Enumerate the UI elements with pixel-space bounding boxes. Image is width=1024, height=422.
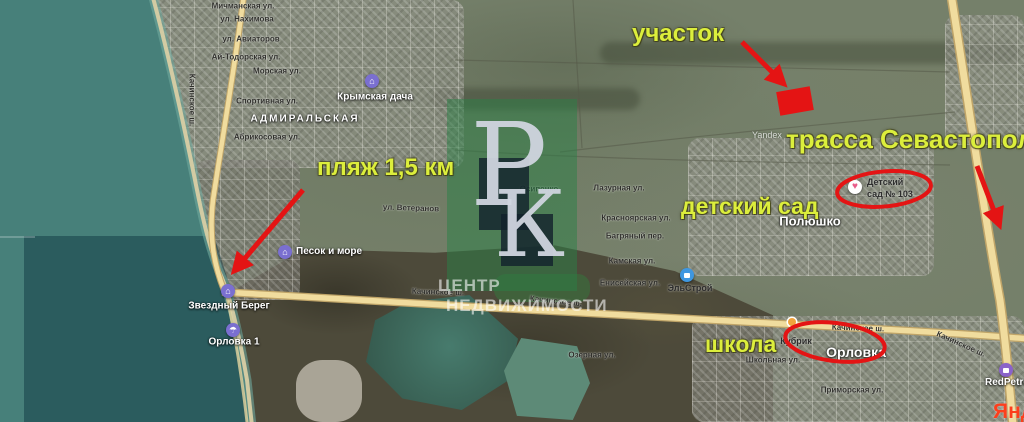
lodging-icon[interactable]: ⌂: [365, 74, 379, 88]
district-label-admiralskaya: АДМИРАЛЬСКАЯ: [250, 114, 359, 125]
street-label: Енисейская ул.: [600, 279, 660, 288]
store-icon[interactable]: [680, 268, 694, 282]
street-label: Качинское ш.: [529, 294, 582, 308]
street-label: Мичманская ул.: [212, 2, 275, 11]
lodging-icon[interactable]: ⌂: [278, 245, 292, 259]
street-label: Абрикосовая ул.: [234, 133, 300, 142]
street-label: Качинское ш.: [188, 74, 197, 126]
street-label: Качинское ш.: [935, 329, 987, 359]
street-label: Багряный пер.: [606, 232, 664, 241]
street-label: Спортивная ул.: [236, 97, 298, 106]
street-label: Красноярская ул.: [601, 214, 670, 223]
street-label: Осипенко: [520, 185, 559, 194]
kindergarten-icon[interactable]: ♥: [848, 180, 862, 194]
poi-label-redpetro: RedPetro: [985, 377, 1024, 388]
beach-icon[interactable]: ☂: [226, 323, 240, 337]
street-label: ул. Нахимова: [220, 15, 273, 24]
street-label: Качинское ш.: [832, 323, 885, 334]
street-label: Озерная ул.: [568, 351, 615, 360]
street-label: Камская ул.: [609, 257, 656, 266]
poi-label-pesok-i-more: Песок и море: [296, 246, 362, 257]
annotation-highway: трасса Севастополь: [786, 124, 1024, 155]
street-label: Приморская ул.: [821, 386, 884, 395]
poi-label-krymskaya-dacha: Крымская дача: [337, 92, 413, 103]
poi-label-zvezdny-bereg: Звездный Берег: [188, 301, 269, 312]
poi-label-kubrik: Кубрик: [780, 336, 812, 346]
street-label: Морская ул.: [253, 67, 301, 76]
fuel-station-icon[interactable]: [999, 363, 1013, 377]
poi-label-elstroy: ЭльСтрой: [668, 283, 713, 293]
annotation-school: школа: [705, 331, 776, 358]
poi-label-orlovka-1: Орловка 1: [208, 337, 259, 348]
annotation-beach: пляж 1,5 км: [317, 154, 454, 182]
poi-label-kindergarten-line2: сад № 103: [867, 189, 913, 199]
street-label: Качинское ш.: [412, 287, 465, 298]
yandex-imagery-watermark: Yandex: [752, 130, 782, 140]
annotation-kindergarten: детский сад: [681, 193, 818, 220]
cafe-icon[interactable]: [788, 318, 796, 326]
district-label-orlovka: Орловка: [826, 344, 886, 360]
street-label: Ай-Тодорская ул.: [212, 53, 281, 62]
map-labels-layer: АДМИРАЛЬСКАЯ Полюшко Орловка Мичманская …: [0, 0, 1024, 422]
lodging-icon[interactable]: ⌂: [221, 284, 235, 298]
satellite-map[interactable]: АДМИРАЛЬСКАЯ Полюшко Орловка Мичманская …: [0, 0, 1024, 422]
street-label: Лазурная ул.: [593, 184, 644, 193]
street-label: ул. Ветеранов: [383, 203, 440, 214]
yandex-logo-partial: Янд: [993, 400, 1024, 422]
poi-label-kindergarten-line1: Детский: [867, 177, 903, 187]
street-label: ул. Авиаторов: [222, 35, 279, 44]
annotation-plot: участок: [632, 20, 724, 48]
